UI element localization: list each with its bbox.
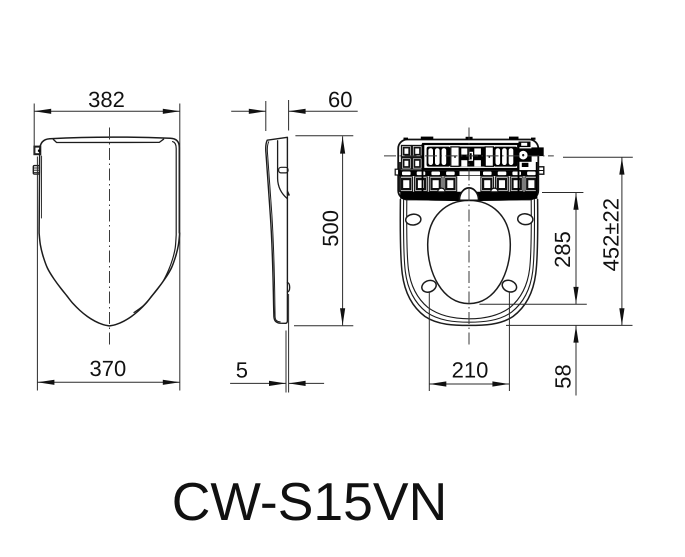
svg-text:210: 210 xyxy=(452,358,489,383)
svg-text:58: 58 xyxy=(551,364,576,388)
svg-text:60: 60 xyxy=(328,87,352,112)
svg-text:370: 370 xyxy=(90,356,127,381)
svg-text:285: 285 xyxy=(550,231,575,268)
svg-text:500: 500 xyxy=(318,210,343,247)
svg-text:452±22: 452±22 xyxy=(598,198,623,271)
svg-text:382: 382 xyxy=(88,87,125,112)
svg-text:CW-S15VN: CW-S15VN xyxy=(172,473,448,532)
svg-text:5: 5 xyxy=(236,357,248,382)
